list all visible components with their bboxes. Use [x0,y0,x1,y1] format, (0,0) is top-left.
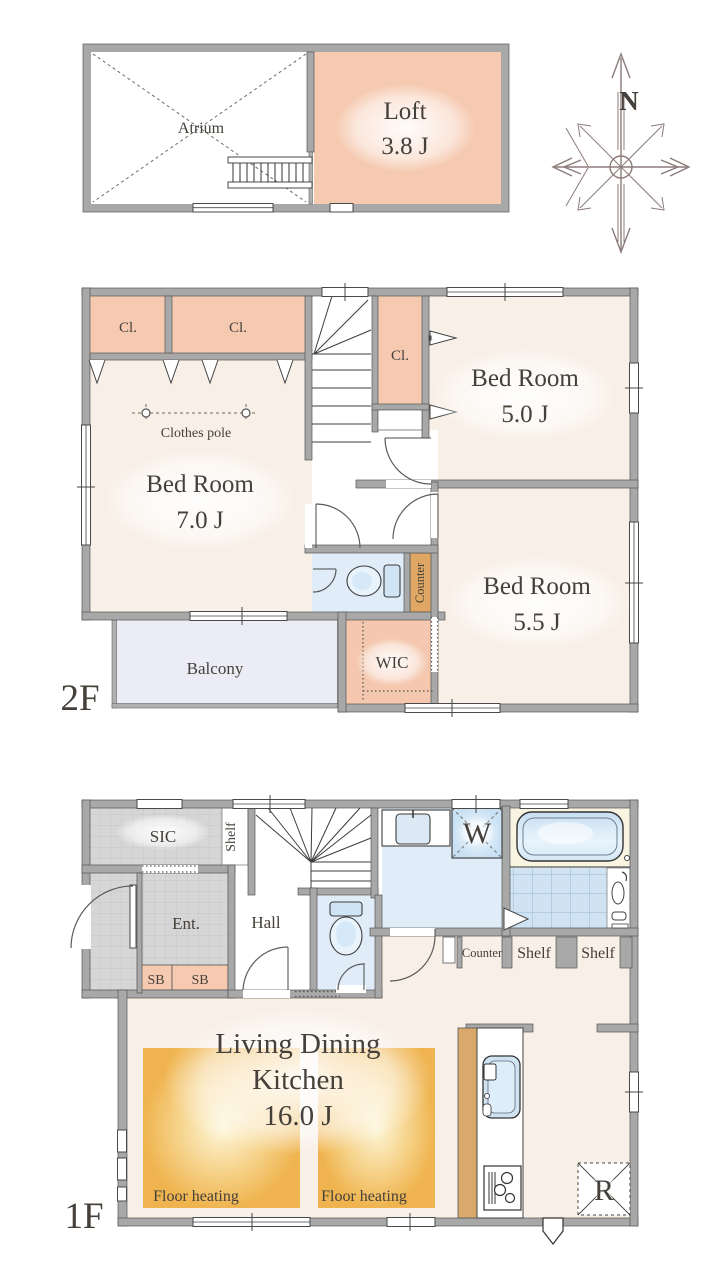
floor-heating2-label: Floor heating [321,1188,407,1205]
kitchen-sink-icon [483,1056,520,1118]
shelf1-label: Shelf [517,945,551,962]
bed55-area-label: 5.5 J [513,609,561,636]
f2-counter-label: Counter [413,562,427,603]
sic-label: SIC [150,827,176,846]
washbasin-icon [382,810,450,846]
bed7-area-label: 7.0 J [176,507,224,534]
bed55-name-label: Bed Room [483,573,591,600]
first-floor-plan: SIC Shelf Ent. Hall SB SB W Counter Shel… [64,795,643,1244]
f2-closet1-label: Cl. [119,320,137,336]
ldk-line2-label: Kitchen [252,1064,344,1096]
shelf2-label: Shelf [581,945,615,962]
entrance-label: Ent. [172,914,200,933]
f1-toilet-icon [330,902,362,955]
balcony-label: Balcony [187,659,244,678]
bed5-area-label: 5.0 J [501,401,549,428]
second-floor-plan: Cl. Cl. Cl. Clothes pole Bed Room 7.0 J … [60,283,643,719]
clothes-pole-label: Clothes pole [161,426,231,441]
loft-area-label: 3.8 J [381,133,429,160]
wic-label: WIC [375,653,408,672]
floor-plan-page: Atrium Loft 3.8 J N [0,0,720,1280]
entry-shelf-label: Shelf [224,822,239,852]
back-door-icon [543,1218,563,1244]
f2-toilet-icon [347,565,400,597]
f2-closet3-label: Cl. [391,348,409,364]
bathtub-icon [517,812,630,861]
compass-north-label: N [619,86,639,116]
bed5-name-label: Bed Room [471,365,579,392]
f2-floor-label: 2F [60,678,99,719]
stove-icon [484,1166,521,1210]
hall-label: Hall [251,913,281,932]
washer-label: W [463,817,492,850]
ldk-line1-label: Living Dining [215,1028,380,1060]
floor-heating1-label: Floor heating [153,1188,239,1205]
floor-plan-drawing: Atrium Loft 3.8 J N [0,0,720,1280]
f2-closet2-label: Cl. [229,320,247,336]
bed7-name-label: Bed Room [146,471,254,498]
atrium-label: Atrium [178,120,225,137]
loft-plan: Atrium Loft 3.8 J [83,44,509,212]
f1-counter-label: Counter [462,946,503,960]
compass-icon: N [553,54,689,252]
ldk-area-label: 16.0 J [263,1100,332,1132]
shoe-box2-label: SB [191,973,208,988]
kitchen-counter-icon [458,1028,523,1218]
f1-floor-label: 1F [64,1196,103,1237]
fridge-label: R [594,1174,614,1207]
loft-name-label: Loft [383,98,426,125]
shoe-box1-label: SB [147,973,164,988]
